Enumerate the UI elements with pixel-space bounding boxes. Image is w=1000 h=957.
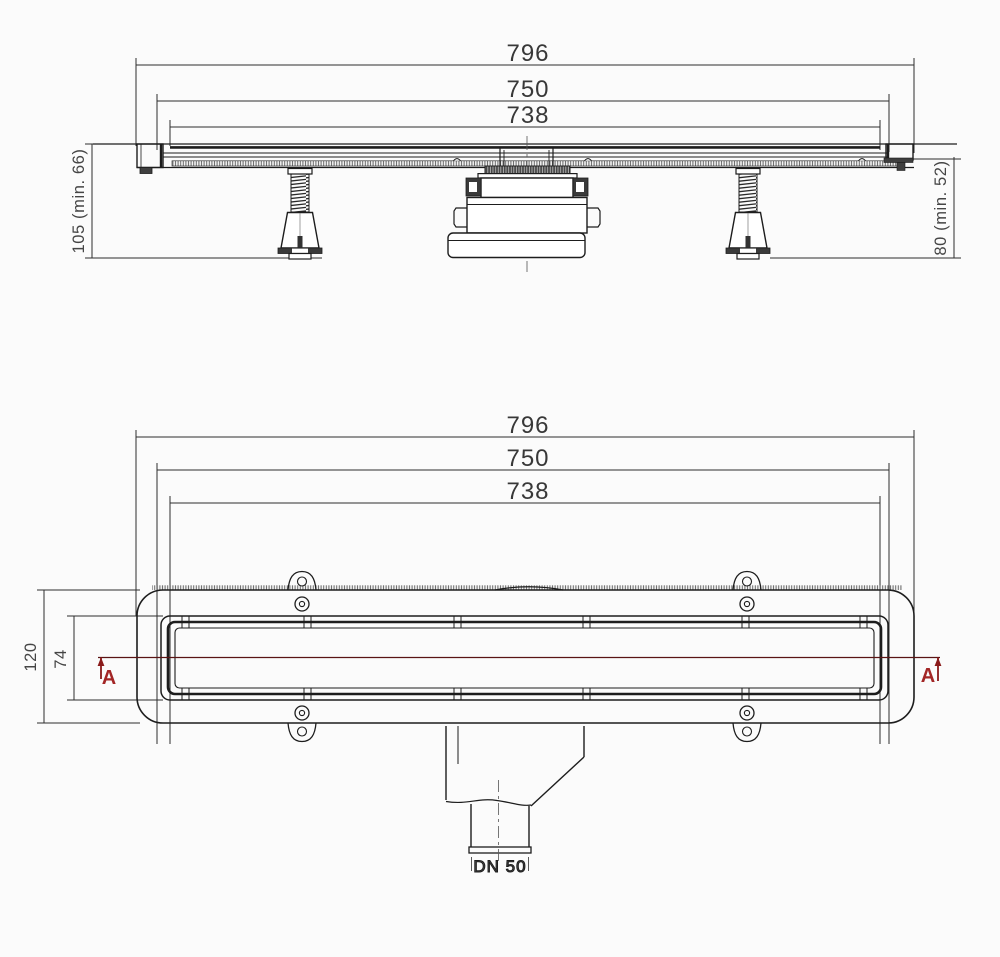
plan-dim-738: 738 [506, 478, 549, 505]
plan-view: 796 750 738 120 74 [22, 412, 941, 876]
plan-dim-750: 750 [506, 445, 549, 472]
outlet-plan: DN 50 [446, 726, 584, 876]
plan-dim-74: 74 [52, 649, 70, 669]
section-line-a-a: A A [98, 657, 942, 689]
side-view: 796 750 738 105 (min. 66) 80 (min. 52) [70, 40, 961, 272]
plan-dim-796: 796 [506, 412, 549, 439]
side-dim-796: 796 [506, 40, 549, 67]
technical-drawing-page: 796 750 738 105 (min. 66) 80 (min. 52) [0, 0, 1000, 957]
plan-dim-120: 120 [22, 642, 40, 671]
side-dim-height-left: 105 (min. 66) [70, 148, 88, 253]
section-marker-a-right: A [921, 665, 935, 687]
section-marker-a-left: A [102, 667, 116, 689]
adjustable-foot-right [726, 169, 770, 260]
side-dim-738: 738 [506, 102, 549, 129]
drain-body-plan [137, 572, 914, 742]
drain-trap-section [448, 136, 600, 272]
adjustable-foot-left [278, 169, 322, 260]
side-dim-height-right: 80 (min. 52) [932, 160, 950, 255]
mounting-tabs [288, 572, 761, 742]
linear-drain-technical-drawing: 796 750 738 105 (min. 66) 80 (min. 52) [0, 0, 1000, 957]
side-dim-750: 750 [506, 76, 549, 103]
outlet-dn50-label: DN 50 [473, 857, 526, 876]
